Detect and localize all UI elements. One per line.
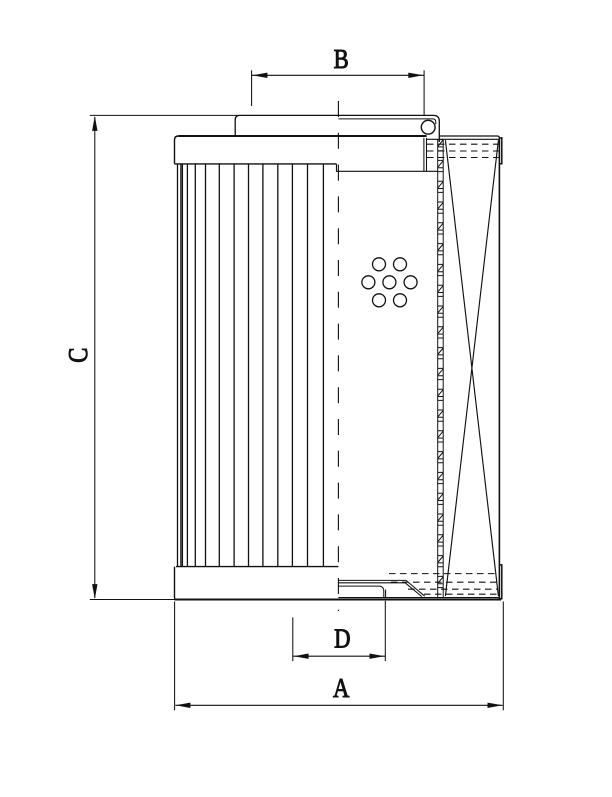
svg-text:D: D <box>334 625 350 654</box>
svg-text:C: C <box>64 348 93 363</box>
svg-text:B: B <box>334 45 349 74</box>
svg-text:A: A <box>333 674 349 703</box>
